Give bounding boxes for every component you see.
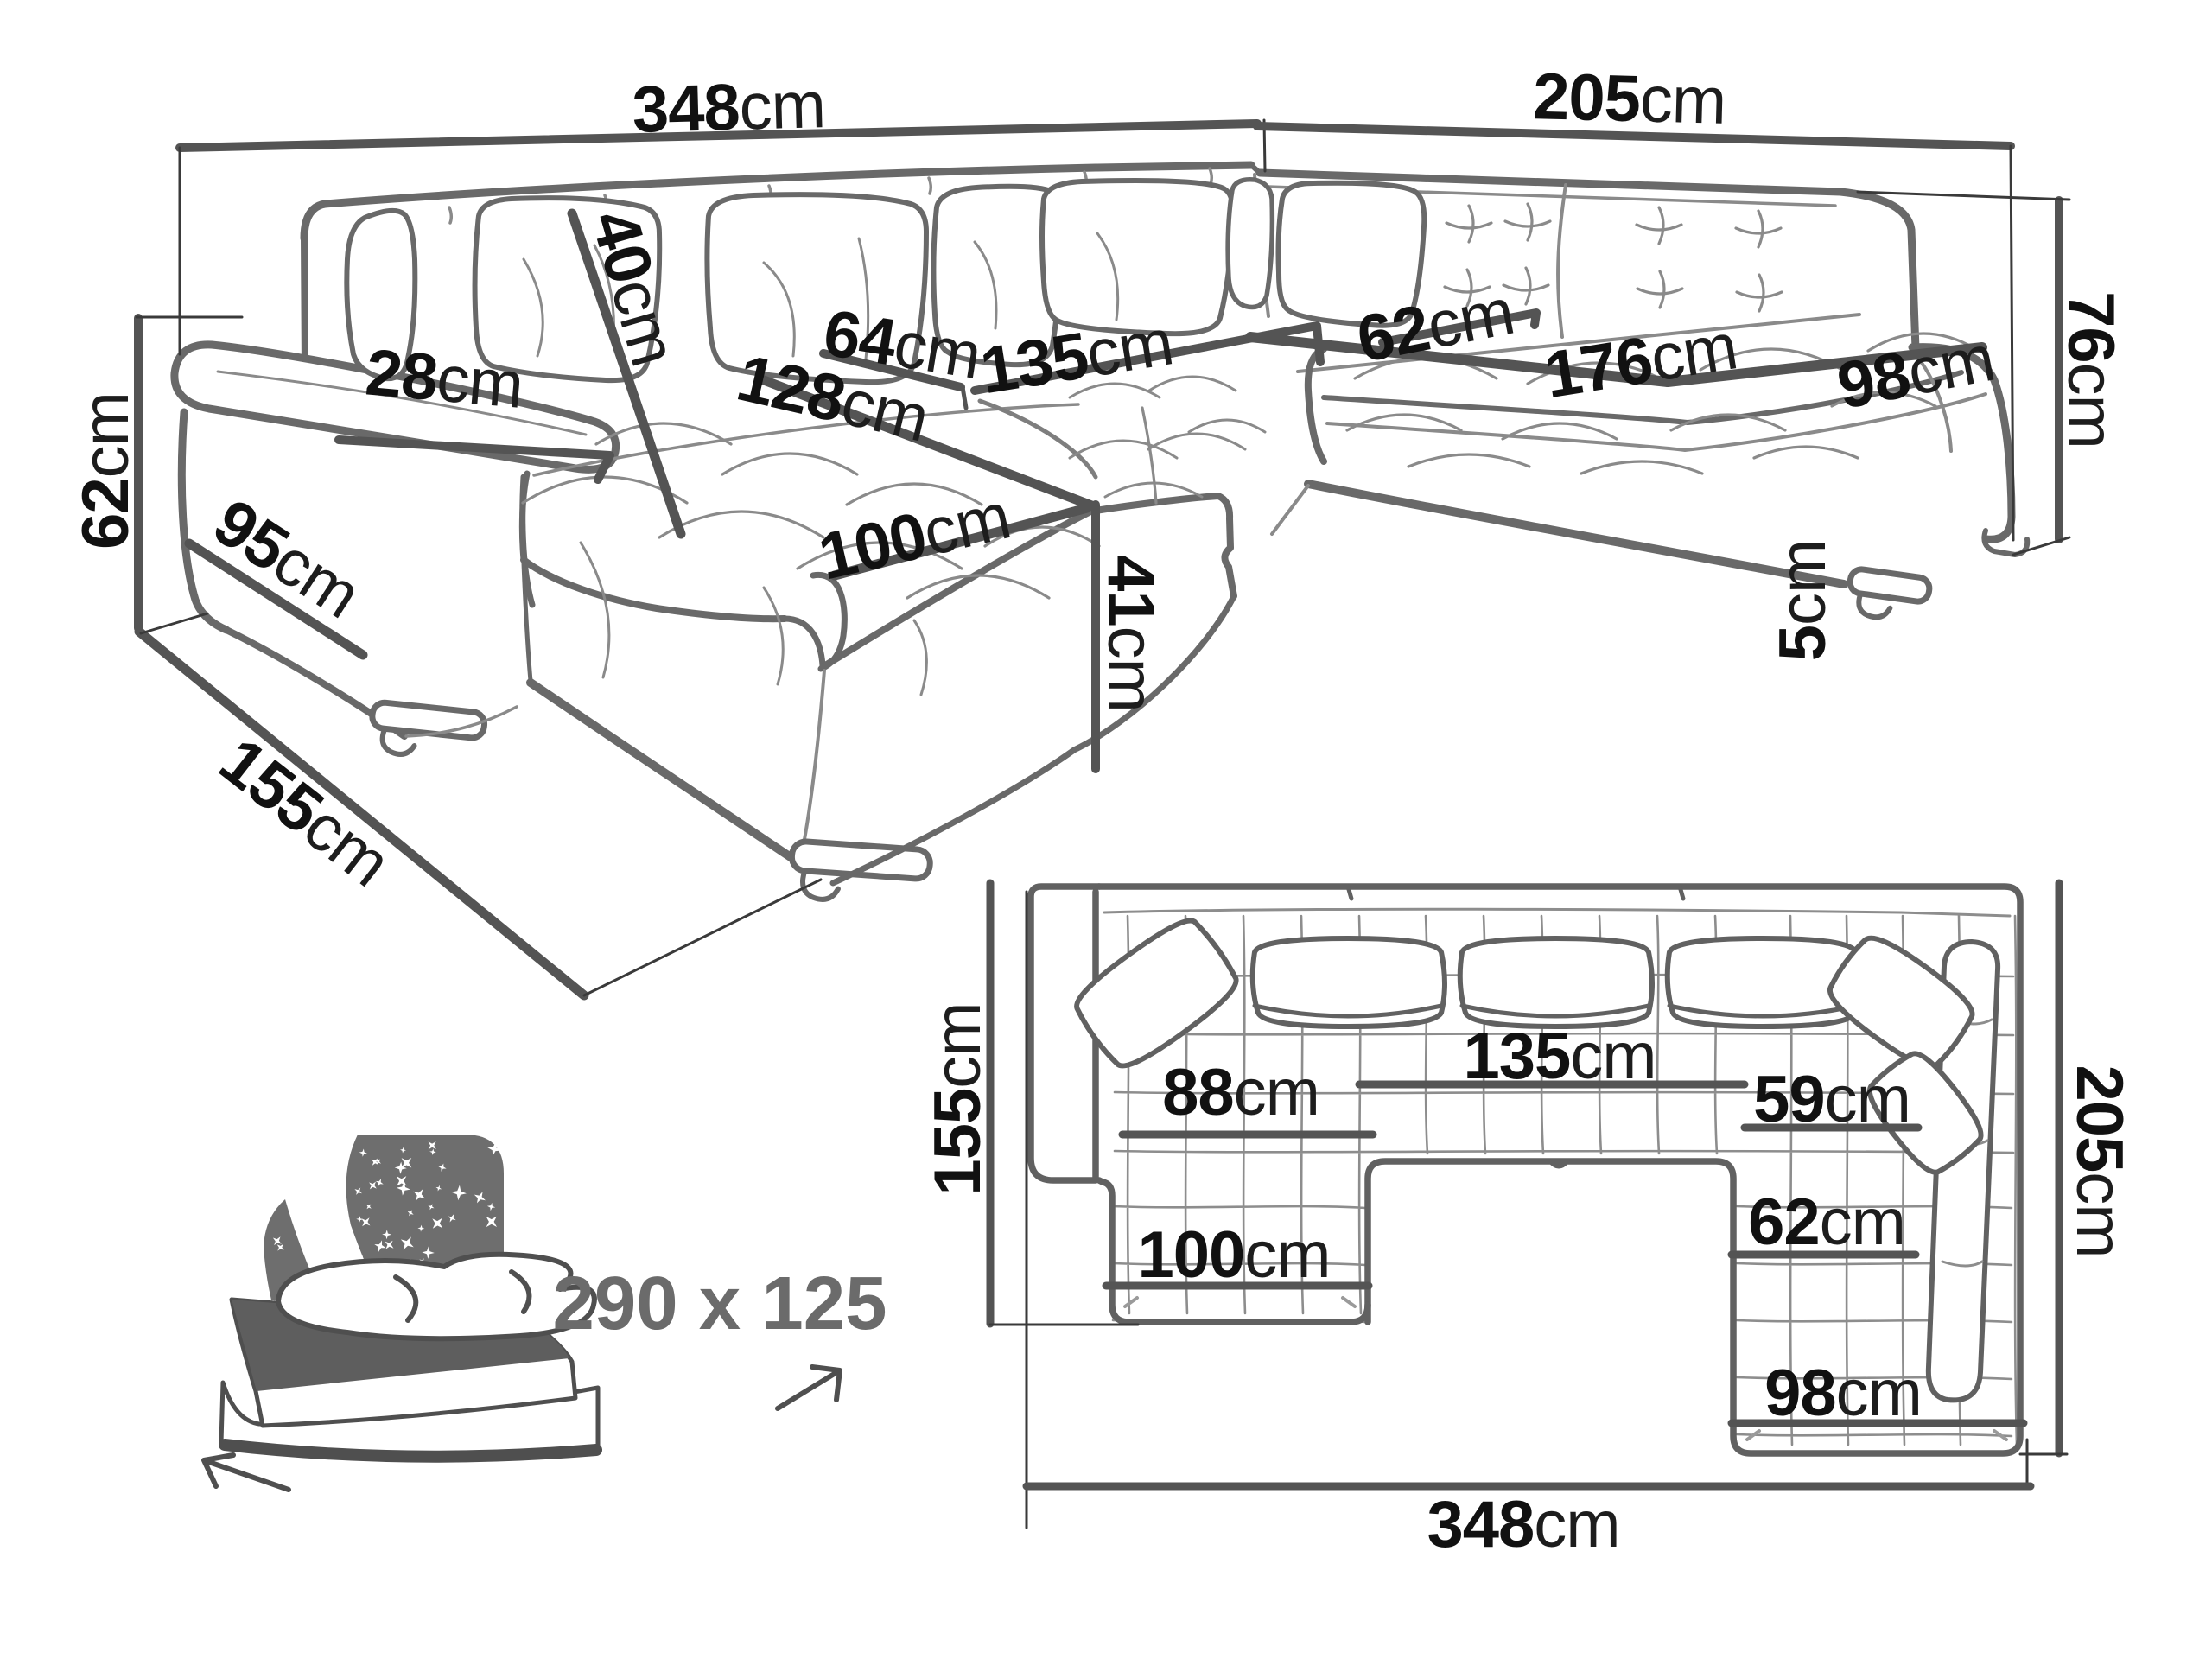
svg-text:205cm: 205cm <box>2063 1065 2136 1257</box>
svg-text:290 x 125: 290 x 125 <box>552 1262 887 1345</box>
svg-text:155cm: 155cm <box>921 1002 995 1195</box>
svg-text:59cm: 59cm <box>1753 1063 1910 1136</box>
svg-text:98cm: 98cm <box>1764 1357 1922 1430</box>
svg-text:100cm: 100cm <box>1137 1218 1330 1292</box>
svg-text:5cm: 5cm <box>1766 540 1840 662</box>
svg-text:28cm: 28cm <box>363 335 526 423</box>
svg-text:348cm: 348cm <box>1427 1488 1619 1561</box>
svg-text:76cm: 76cm <box>2054 291 2127 448</box>
svg-text:62cm: 62cm <box>69 392 143 550</box>
svg-text:348cm: 348cm <box>632 68 826 147</box>
svg-text:41cm: 41cm <box>1094 555 1167 712</box>
svg-text:135cm: 135cm <box>1463 1020 1656 1093</box>
svg-text:88cm: 88cm <box>1162 1056 1319 1129</box>
svg-text:205cm: 205cm <box>1532 60 1726 138</box>
svg-text:62cm: 62cm <box>1748 1185 1905 1259</box>
